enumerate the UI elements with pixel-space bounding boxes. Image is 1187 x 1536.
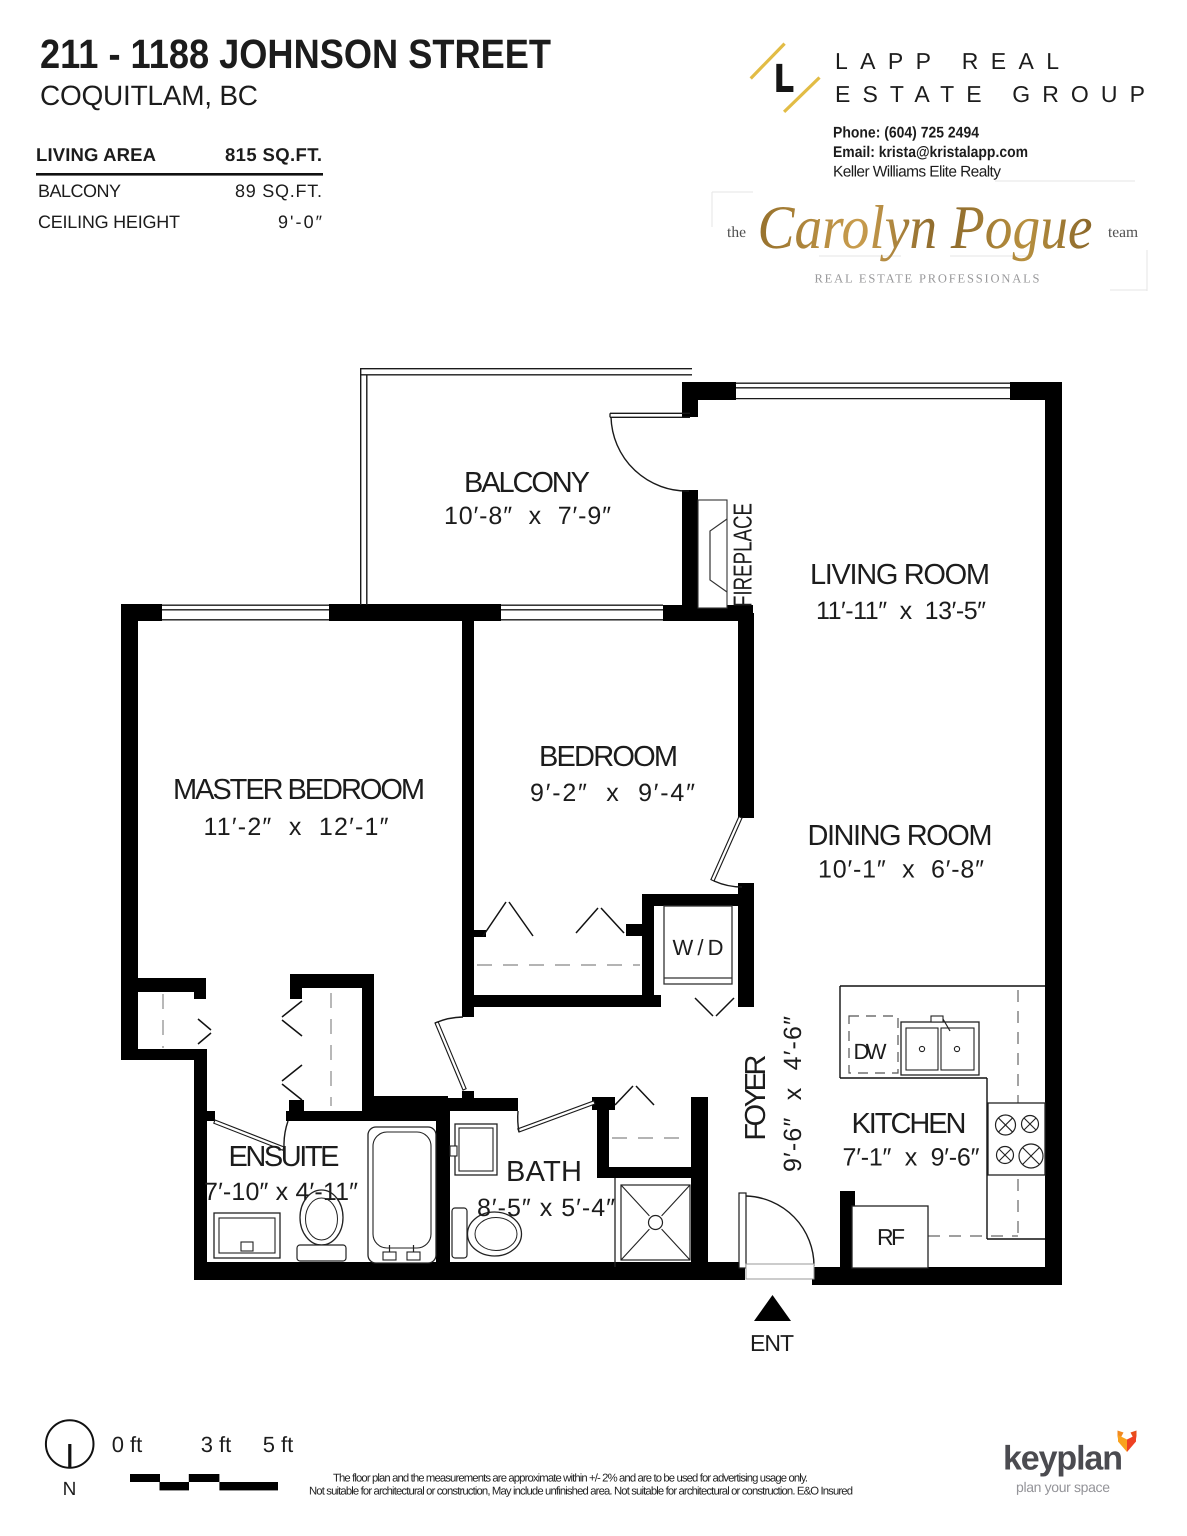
svg-text:COQUITLAM, BC: COQUITLAM, BC xyxy=(40,80,258,111)
svg-text:The floor plan and the measure: The floor plan and the measurements are … xyxy=(333,1473,808,1485)
svg-text:MASTER BEDROOM: MASTER BEDROOM xyxy=(173,774,425,806)
svg-text:team: team xyxy=(1108,224,1138,241)
svg-text:ENSUITE: ENSUITE xyxy=(229,1141,340,1173)
svg-text:89 SQ.FT.: 89 SQ.FT. xyxy=(235,181,322,201)
svg-text:DINING ROOM: DINING ROOM xyxy=(808,820,993,852)
svg-text:3 ft: 3 ft xyxy=(201,1432,232,1457)
svg-text:9′-6″ x 4′-6″: 9′-6″ x 4′-6″ xyxy=(779,1016,807,1172)
svg-text:N: N xyxy=(63,1479,77,1500)
svg-text:11′-2″ x 12′-1″: 11′-2″ x 12′-1″ xyxy=(204,813,389,841)
svg-text:9′-2″ x 9′-4″: 9′-2″ x 9′-4″ xyxy=(530,779,695,807)
svg-text:FOYER: FOYER xyxy=(740,1055,772,1141)
svg-text:Keller Williams Elite Realty: Keller Williams Elite Realty xyxy=(833,164,1001,181)
svg-text:DW: DW xyxy=(854,1039,887,1064)
svg-text:FIREPLACE: FIREPLACE xyxy=(728,503,758,607)
svg-text:BALCONY: BALCONY xyxy=(38,181,121,201)
svg-text:Email: krista@kristalapp.com: Email: krista@kristalapp.com xyxy=(833,144,1028,161)
svg-text:Not suitable for architectural: Not suitable for architectural or constr… xyxy=(309,1486,853,1498)
svg-text:8′-5″ x 5′-4″: 8′-5″ x 5′-4″ xyxy=(477,1194,615,1222)
svg-text:BEDROOM: BEDROOM xyxy=(539,741,678,773)
svg-text:0 ft: 0 ft xyxy=(112,1432,143,1457)
svg-text:ENT: ENT xyxy=(750,1330,794,1356)
svg-text:7′-10″ x 4′-11″: 7′-10″ x 4′-11″ xyxy=(204,1178,358,1206)
svg-text:10′-1″ x 6′-8″: 10′-1″ x 6′-8″ xyxy=(818,856,984,884)
svg-text:5 ft: 5 ft xyxy=(263,1432,294,1457)
svg-text:211 - 1188 JOHNSON STREET: 211 - 1188 JOHNSON STREET xyxy=(40,31,551,77)
svg-text:W/D: W/D xyxy=(673,935,724,960)
svg-text:keyplan: keyplan xyxy=(1003,1440,1123,1478)
svg-text:Phone: (604) 725 2494: Phone: (604) 725 2494 xyxy=(833,125,979,142)
svg-text:plan your space: plan your space xyxy=(1016,1479,1110,1495)
svg-text:KITCHEN: KITCHEN xyxy=(852,1108,967,1140)
svg-text:the: the xyxy=(727,224,746,241)
svg-text:RF: RF xyxy=(877,1224,905,1250)
svg-text:REAL ESTATE PROFESSIONALS: REAL ESTATE PROFESSIONALS xyxy=(815,272,1040,286)
svg-text:ESTATE GROUP: ESTATE GROUP xyxy=(835,81,1145,107)
svg-text:LIVING AREA: LIVING AREA xyxy=(36,144,156,165)
svg-text:CEILING HEIGHT: CEILING HEIGHT xyxy=(38,212,180,232)
svg-text:815 SQ.FT.: 815 SQ.FT. xyxy=(225,144,322,165)
svg-text:BALCONY: BALCONY xyxy=(464,467,590,499)
svg-text:9'-0″: 9'-0″ xyxy=(278,212,323,232)
svg-text:7′-1″ x 9′-6″: 7′-1″ x 9′-6″ xyxy=(843,1144,980,1172)
svg-text:11′-11″ x 13′-5″: 11′-11″ x 13′-5″ xyxy=(816,597,986,625)
svg-text:Carolyn Pogue: Carolyn Pogue xyxy=(758,194,1093,262)
svg-text:10′-8″ x 7′-9″: 10′-8″ x 7′-9″ xyxy=(444,502,611,530)
svg-text:LAPP REAL: LAPP REAL xyxy=(835,48,1059,74)
svg-text:BATH: BATH xyxy=(506,1156,582,1188)
svg-text:LIVING ROOM: LIVING ROOM xyxy=(810,559,990,591)
